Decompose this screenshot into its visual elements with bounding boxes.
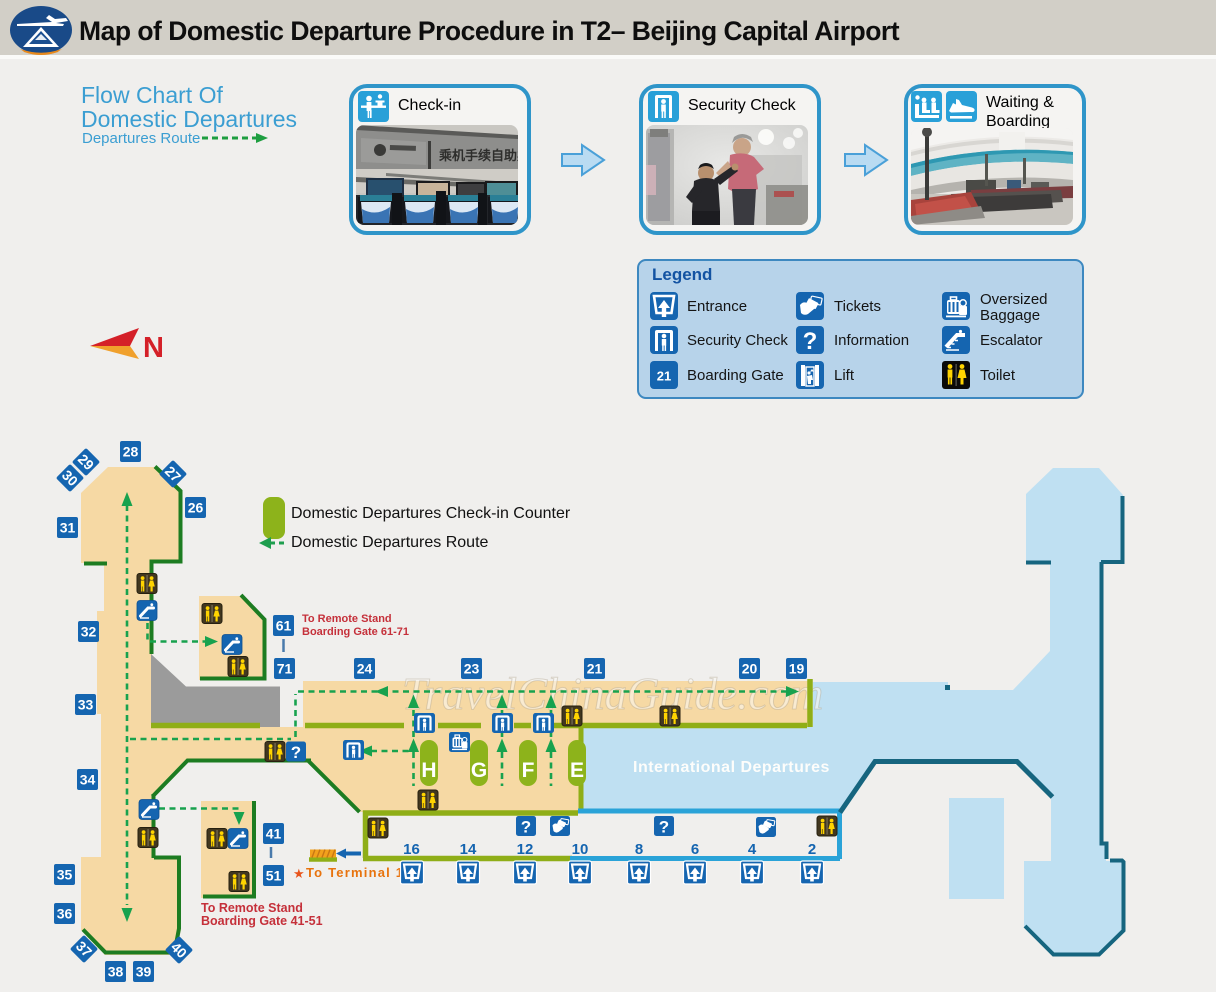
svg-text:29: 29 xyxy=(75,451,97,473)
svg-text:36: 36 xyxy=(57,906,73,922)
svg-text:8: 8 xyxy=(635,841,643,858)
svg-text:61: 61 xyxy=(276,618,292,634)
svg-text:33: 33 xyxy=(78,697,94,713)
svg-text:34: 34 xyxy=(80,772,96,788)
svg-text:12: 12 xyxy=(517,841,534,858)
svg-text:28: 28 xyxy=(123,444,139,460)
svg-text:4: 4 xyxy=(748,841,757,858)
svg-text:To Terminal 1: To Terminal 1 xyxy=(306,865,404,880)
svg-text:H: H xyxy=(421,759,436,782)
svg-text:26: 26 xyxy=(188,500,204,516)
svg-text:2: 2 xyxy=(808,841,816,858)
svg-text:24: 24 xyxy=(357,661,373,677)
svg-text:6: 6 xyxy=(691,841,699,858)
svg-text:★: ★ xyxy=(293,866,305,881)
svg-text:Boarding Gate 61-71: Boarding Gate 61-71 xyxy=(302,626,409,638)
svg-text:16: 16 xyxy=(403,841,420,858)
svg-text:F: F xyxy=(522,759,535,782)
svg-text:Boarding Gate 41-51: Boarding Gate 41-51 xyxy=(201,914,323,928)
svg-text:19: 19 xyxy=(789,661,805,677)
svg-text:20: 20 xyxy=(742,661,758,677)
svg-text:14: 14 xyxy=(460,841,477,858)
svg-text:39: 39 xyxy=(136,964,152,980)
svg-text:30: 30 xyxy=(59,467,81,489)
svg-text:G: G xyxy=(471,759,487,782)
svg-text:23: 23 xyxy=(464,661,480,677)
svg-text:51: 51 xyxy=(266,868,282,884)
svg-text:E: E xyxy=(570,759,584,782)
svg-text:International Departures: International Departures xyxy=(633,759,830,776)
svg-text:31: 31 xyxy=(60,520,76,536)
svg-text:10: 10 xyxy=(572,841,589,858)
svg-text:35: 35 xyxy=(57,867,73,883)
svg-text:21: 21 xyxy=(587,661,603,677)
svg-text:41: 41 xyxy=(266,826,282,842)
svg-text:71: 71 xyxy=(277,661,293,677)
svg-text:32: 32 xyxy=(81,624,97,640)
svg-text:To Remote Stand: To Remote Stand xyxy=(201,901,303,915)
svg-text:To Remote Stand: To Remote Stand xyxy=(302,613,392,625)
svg-text:38: 38 xyxy=(108,964,124,980)
